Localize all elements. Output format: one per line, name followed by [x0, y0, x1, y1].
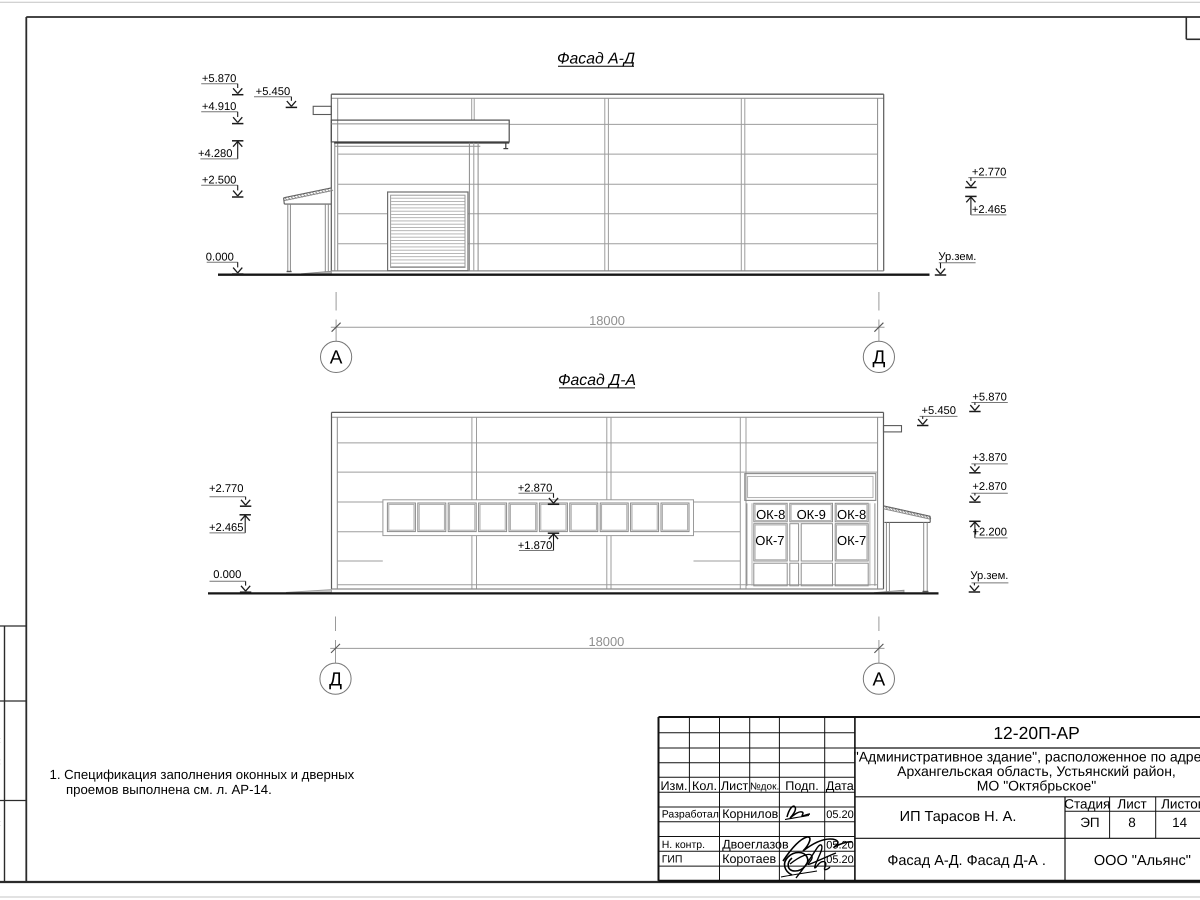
svg-text:Лист: Лист	[1117, 797, 1146, 812]
svg-text:+3.870: +3.870	[972, 452, 1007, 464]
svg-text:Архангельская область, Устьянс: Архангельская область, Устьянский район,	[897, 763, 1176, 779]
svg-text:"Административное здание", рас: "Административное здание", расположенное…	[854, 748, 1200, 764]
svg-text:Коротаев: Коротаев	[722, 852, 776, 866]
svg-text:+2.200: +2.200	[972, 527, 1007, 539]
svg-text:ООО "Альянс": ООО "Альянс"	[1094, 853, 1191, 869]
svg-text:+2.500: +2.500	[202, 174, 237, 186]
svg-text:+4.910: +4.910	[202, 101, 237, 113]
svg-text:Разработал: Разработал	[662, 809, 719, 821]
svg-text:+2.870: +2.870	[518, 482, 553, 494]
svg-text:Ур.зем.: Ур.зем.	[938, 251, 976, 263]
svg-text:8: 8	[1128, 815, 1136, 830]
svg-text:+2.770: +2.770	[972, 167, 1007, 179]
svg-text:Д: Д	[872, 348, 885, 369]
svg-text:+2.870: +2.870	[972, 481, 1007, 493]
svg-text:1. Спецификация заполнения око: 1. Спецификация заполнения оконных и две…	[50, 767, 355, 782]
svg-text:18000: 18000	[588, 634, 624, 649]
svg-text:ОК-8: ОК-8	[756, 507, 785, 522]
svg-text:МО "Октябрьское": МО "Октябрьское"	[977, 778, 1097, 794]
svg-text:ОК-7: ОК-7	[755, 533, 784, 548]
svg-text:Ур.зем.: Ур.зем.	[970, 570, 1008, 582]
svg-text:Фасад Д-А: Фасад Д-А	[558, 372, 636, 389]
svg-text:Д: Д	[329, 669, 342, 690]
svg-text:ГИП: ГИП	[662, 854, 683, 866]
svg-text:12-20П-АР: 12-20П-АР	[993, 723, 1080, 743]
svg-text:Листов: Листов	[1161, 797, 1200, 812]
svg-text:14: 14	[1172, 815, 1188, 830]
svg-text:ЭП: ЭП	[1080, 815, 1099, 830]
svg-text:+5.450: +5.450	[921, 405, 956, 417]
svg-text:+5.870: +5.870	[202, 73, 237, 85]
svg-text:+2.770: +2.770	[209, 483, 244, 495]
svg-text:Н. контр.: Н. контр.	[662, 839, 705, 851]
svg-text:Взам. инв. №: Взам. инв. №	[0, 637, 1, 690]
svg-text:Корнилов: Корнилов	[722, 807, 778, 821]
svg-text:Лист: Лист	[721, 779, 749, 793]
svg-text:05.20: 05.20	[826, 809, 854, 821]
svg-text:0.000: 0.000	[213, 569, 241, 581]
svg-text:Инв. № подл.: Инв. № подл.	[0, 814, 1, 867]
svg-text:проемов выполнена см. л. АР-14: проемов выполнена см. л. АР-14.	[66, 782, 272, 797]
svg-text:0.000: 0.000	[206, 251, 234, 263]
svg-text:Кол.: Кол.	[692, 779, 717, 793]
svg-text:Изм.: Изм.	[661, 779, 688, 793]
svg-text:+5.450: +5.450	[256, 86, 291, 98]
svg-text:А: А	[873, 669, 886, 690]
svg-text:+5.870: +5.870	[972, 392, 1007, 404]
svg-text:+4.280: +4.280	[198, 148, 233, 160]
svg-text:ОК-7: ОК-7	[837, 533, 866, 548]
svg-text:Стадия: Стадия	[1064, 797, 1110, 812]
svg-text:ОК-8: ОК-8	[837, 507, 866, 522]
svg-text:+2.465: +2.465	[209, 522, 244, 534]
svg-text:Фасад А-Д. Фасад Д-А .: Фасад А-Д. Фасад Д-А .	[887, 853, 1046, 869]
svg-text:+2.465: +2.465	[972, 204, 1007, 216]
svg-text:№док.: №док.	[750, 781, 779, 792]
svg-text:18000: 18000	[589, 313, 625, 328]
svg-text:ИП Тарасов Н. А.: ИП Тарасов Н. А.	[900, 809, 1017, 825]
svg-text:А: А	[330, 348, 343, 369]
svg-text:Подп. и дата: Подп. и дата	[0, 725, 1, 775]
svg-text:Двоеглазов: Двоеглазов	[722, 837, 789, 851]
svg-text:Дата: Дата	[826, 779, 854, 793]
svg-text:Фасад А-Д: Фасад А-Д	[557, 51, 635, 68]
svg-text:ОК-9: ОК-9	[797, 507, 826, 522]
svg-text:Подп.: Подп.	[785, 779, 818, 793]
